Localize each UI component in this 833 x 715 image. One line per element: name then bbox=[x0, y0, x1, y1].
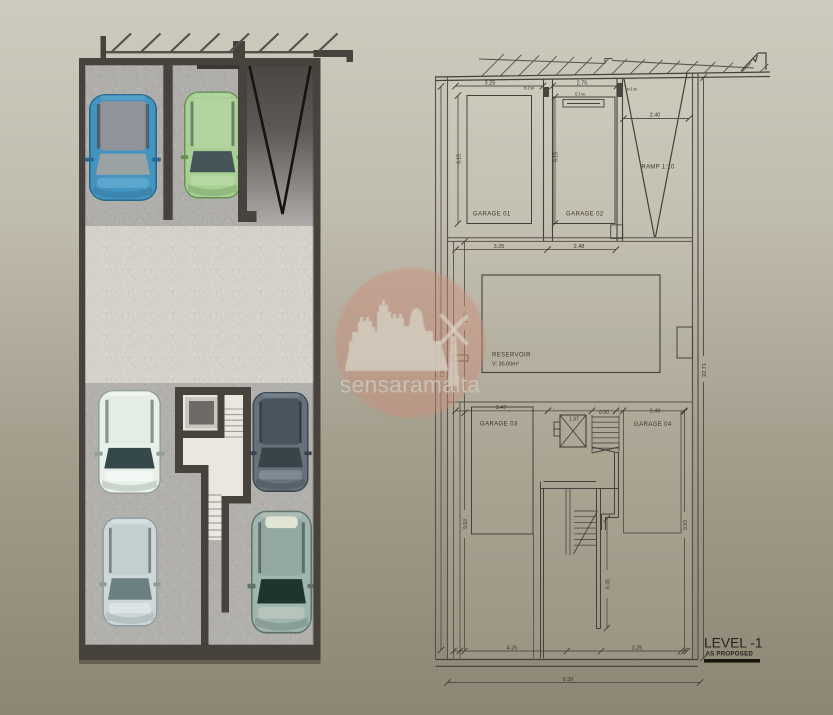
svg-text:3.47: 3.47 bbox=[496, 405, 507, 411]
svg-text:6.45: 6.45 bbox=[606, 579, 612, 589]
svg-text:GARAGE 03: GARAGE 03 bbox=[480, 422, 518, 428]
svg-text:h.l.w: h.l.w bbox=[524, 86, 534, 92]
svg-text:GARAGE 01: GARAGE 01 bbox=[473, 212, 511, 218]
svg-text:5.l.w.: 5.l.w. bbox=[575, 92, 586, 98]
svg-text:GARAGE 04: GARAGE 04 bbox=[634, 422, 672, 428]
svg-text:RESERVOIR: RESERVOIR bbox=[492, 353, 531, 359]
svg-text:2.40: 2.40 bbox=[650, 113, 661, 119]
svg-text:2.48: 2.48 bbox=[574, 244, 585, 250]
svg-text:6.15: 6.15 bbox=[457, 154, 463, 164]
svg-text:AS PROPOSED: AS PROPOSED bbox=[706, 651, 754, 658]
svg-text:9.39: 9.39 bbox=[563, 677, 574, 683]
svg-text:sensaramalta: sensaramalta bbox=[340, 372, 480, 398]
svg-text:3.25: 3.25 bbox=[494, 244, 505, 250]
svg-text:9.93: 9.93 bbox=[463, 519, 469, 529]
svg-text:3.25: 3.25 bbox=[485, 81, 496, 87]
svg-text:2.75: 2.75 bbox=[577, 81, 588, 87]
svg-text:GARAGE 02: GARAGE 02 bbox=[566, 212, 604, 218]
svg-text:RAMP 1:10: RAMP 1:10 bbox=[641, 165, 675, 171]
svg-text:2.49: 2.49 bbox=[650, 409, 661, 415]
svg-text:9.93: 9.93 bbox=[683, 520, 689, 530]
svg-text:1.37: 1.37 bbox=[569, 417, 579, 423]
svg-text:0.90: 0.90 bbox=[599, 410, 609, 416]
svg-text:3.25: 3.25 bbox=[632, 646, 643, 652]
svg-text:22.71: 22.71 bbox=[702, 363, 708, 377]
svg-text:V: 36.00m²: V: 36.00m² bbox=[492, 362, 519, 368]
svg-text:n.l.w: n.l.w bbox=[627, 87, 637, 93]
svg-text:LEVEL -1: LEVEL -1 bbox=[704, 636, 763, 651]
svg-text:6.15: 6.15 bbox=[554, 152, 560, 162]
svg-text:4.25: 4.25 bbox=[507, 646, 518, 652]
